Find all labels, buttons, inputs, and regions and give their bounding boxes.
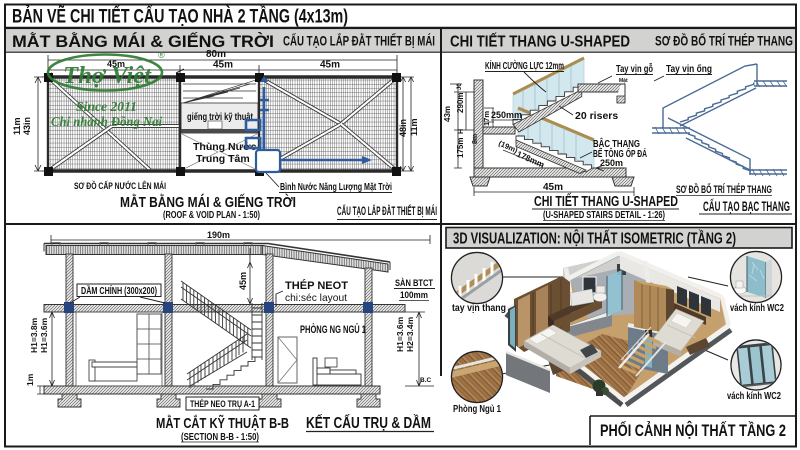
svg-text:Since 2011: Since 2011 xyxy=(76,100,137,115)
svg-text:Thợ Việt: Thợ Việt xyxy=(63,63,152,89)
svg-text:J0: J0 xyxy=(457,83,463,90)
svg-text:H1=3.6m: H1=3.6m xyxy=(395,316,405,352)
svg-text:Mật: Mật xyxy=(619,78,628,84)
svg-text:45m: 45m xyxy=(543,182,563,193)
svg-text:tay vịn thang: tay vịn thang xyxy=(452,302,506,314)
svg-text:100mm: 100mm xyxy=(400,290,428,301)
svg-text:250m: 250m xyxy=(600,158,623,168)
svg-text:8m: 8m xyxy=(472,134,479,144)
svg-text:CHI TIẾT THANG U-SHAPED: CHI TIẾT THANG U-SHAPED xyxy=(450,32,630,51)
svg-text:H2=3.4m: H2=3.4m xyxy=(405,316,415,352)
svg-text:Tay vịn gỗ: Tay vịn gỗ xyxy=(616,62,653,75)
svg-text:175m: 175m xyxy=(456,138,465,158)
svg-text:KẾT CẤU TRỤ & DẦM: KẾT CẤU TRỤ & DẦM xyxy=(306,415,431,432)
svg-text:43m: 43m xyxy=(443,106,452,122)
svg-text:B.C: B.C xyxy=(420,377,432,384)
svg-text:250mm: 250mm xyxy=(491,110,522,120)
svg-text:43in: 43in xyxy=(22,117,32,135)
svg-text:PHỐI CẢNH NỘI THẤT TẦNG 2: PHỐI CẢNH NỘI THẤT TẦNG 2 xyxy=(600,420,786,440)
svg-text:Phòng Ngủ 1: Phòng Ngủ 1 xyxy=(453,403,501,415)
svg-text:SÀN BTCT: SÀN BTCT xyxy=(395,278,433,289)
svg-text:H1=3.6m: H1=3.6m xyxy=(39,317,49,353)
svg-text:11m: 11m xyxy=(409,118,419,136)
svg-text:BẢN VẼ CHI TIẾT CẤU TẠO NHÀ 2: BẢN VẼ CHI TIẾT CẤU TẠO NHÀ 2 TẦNG (4x13… xyxy=(12,6,348,28)
svg-text:Tay vịn ống: Tay vịn ống xyxy=(666,63,712,75)
svg-text:3D VISUALIZATION: NỘI THẤT ISO: 3D VISUALIZATION: NỘI THẤT ISOMETRIC (TẦ… xyxy=(453,230,736,248)
svg-text:H: H xyxy=(458,129,465,134)
svg-text:MẰT CẮT KỸ THUẬT B-B: MẰT CẮT KỸ THUẬT B-B xyxy=(156,414,289,432)
svg-text:(SECTION B-B - 1:50): (SECTION B-B - 1:50) xyxy=(181,431,259,443)
svg-text:45m: 45m xyxy=(320,60,340,71)
svg-text:Trung Tâm: Trung Tâm xyxy=(196,153,250,165)
svg-text:20 risers: 20 risers xyxy=(575,110,618,122)
svg-text:Chi nhánh Đồng Nai: Chi nhánh Đồng Nai xyxy=(51,114,162,129)
svg-text:17m: 17m xyxy=(482,111,491,126)
svg-text:SƠ ĐỒ BỐ TRÍ THÉP THANG: SƠ ĐỒ BỐ TRÍ THÉP THANG xyxy=(676,182,772,196)
svg-text:11m: 11m xyxy=(12,117,22,135)
svg-text:(ROOF & VOID PLAN - 1:50): (ROOF & VOID PLAN - 1:50) xyxy=(163,209,260,221)
svg-text:®: ® xyxy=(158,50,165,60)
svg-text:1m: 1m xyxy=(25,373,35,386)
svg-text:45m: 45m xyxy=(238,272,248,290)
svg-text:H1=3.8m: H1=3.8m xyxy=(29,317,39,353)
svg-text:MẰT BẰNG MÁI & GIẾNG TRỜI: MẰT BẰNG MÁI & GIẾNG TRỜI xyxy=(12,32,274,51)
svg-text:KÍNH CƯỜNG LỰC 12mm: KÍNH CƯỜNG LỰC 12mm xyxy=(485,59,564,72)
svg-text:DẦM CHÍNH (300x200): DẦM CHÍNH (300x200) xyxy=(81,284,157,297)
svg-text:PHÒNG NG NGỦ 1: PHÒNG NG NGỦ 1 xyxy=(300,323,366,336)
svg-text:190m: 190m xyxy=(207,230,230,240)
svg-text:45m: 45m xyxy=(213,60,233,71)
svg-text:SƠ ĐỒ BỐ TRÍ THÉP THANG: SƠ ĐỒ BỐ TRÍ THÉP THANG xyxy=(655,34,793,49)
svg-text:chi:séc layout: chi:séc layout xyxy=(285,292,347,304)
svg-text:80m: 80m xyxy=(206,49,226,60)
svg-text:SƠ ĐỒ CẤP NƯỚC LÊN MÁI: SƠ ĐỒ CẤP NƯỚC LÊN MÁI xyxy=(74,180,166,192)
svg-text:CHI TIẾT THANG U-SHAPED: CHI TIẾT THANG U-SHAPED xyxy=(534,193,678,210)
svg-text:vách kính WC2: vách kính WC2 xyxy=(727,390,781,402)
svg-text:Bình Nước Năng Lượng Mặt Trời: Bình Nước Năng Lượng Mặt Trời xyxy=(280,181,392,193)
svg-text:290m: 290m xyxy=(456,93,465,113)
svg-text:CẤU TẠO BẠC THANG: CẤU TẠO BẠC THANG xyxy=(703,199,790,214)
svg-text:THÉP NEOT: THÉP NEOT xyxy=(285,279,348,292)
svg-text:(U-SHAPED STAIRS DETAIL - 1:26: (U-SHAPED STAIRS DETAIL - 1:26) xyxy=(543,209,665,221)
svg-text:THÉP NEO TRỤ A-1: THÉP NEO TRỤ A-1 xyxy=(190,399,256,410)
svg-text:vách kính WC2: vách kính WC2 xyxy=(730,302,784,314)
svg-text:CẤU TẠO LẮP ĐẰT THIẾT BỊ MÁI: CẤU TẠO LẮP ĐẰT THIẾT BỊ MÁI xyxy=(283,34,435,49)
svg-text:CẤU TẠO LẮP ĐẰT THIẾT BỊ MÁI: CẤU TẠO LẮP ĐẰT THIẾT BỊ MÁI xyxy=(337,203,437,218)
